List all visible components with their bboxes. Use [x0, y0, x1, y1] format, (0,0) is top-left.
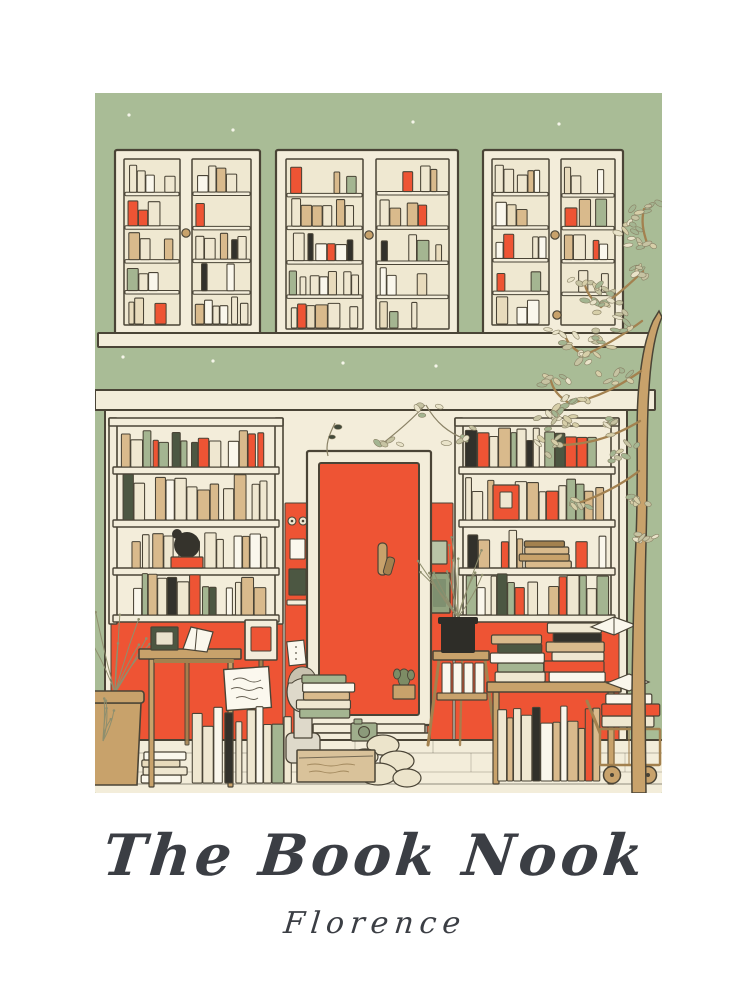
poster-page: The Book Nook Florence — [0, 0, 750, 1000]
cabinet-window — [276, 150, 458, 338]
book-stack-far-left — [141, 752, 187, 783]
poster-title: The Book Nook — [0, 822, 750, 889]
bookshop-illustration — [95, 93, 662, 793]
upper-windows — [115, 150, 623, 338]
cardboard-box — [297, 750, 375, 782]
price-sign — [224, 666, 272, 710]
poster-subtitle: Florence — [0, 906, 750, 941]
cabinet-window — [115, 150, 260, 334]
bookshelf-right — [455, 418, 619, 624]
